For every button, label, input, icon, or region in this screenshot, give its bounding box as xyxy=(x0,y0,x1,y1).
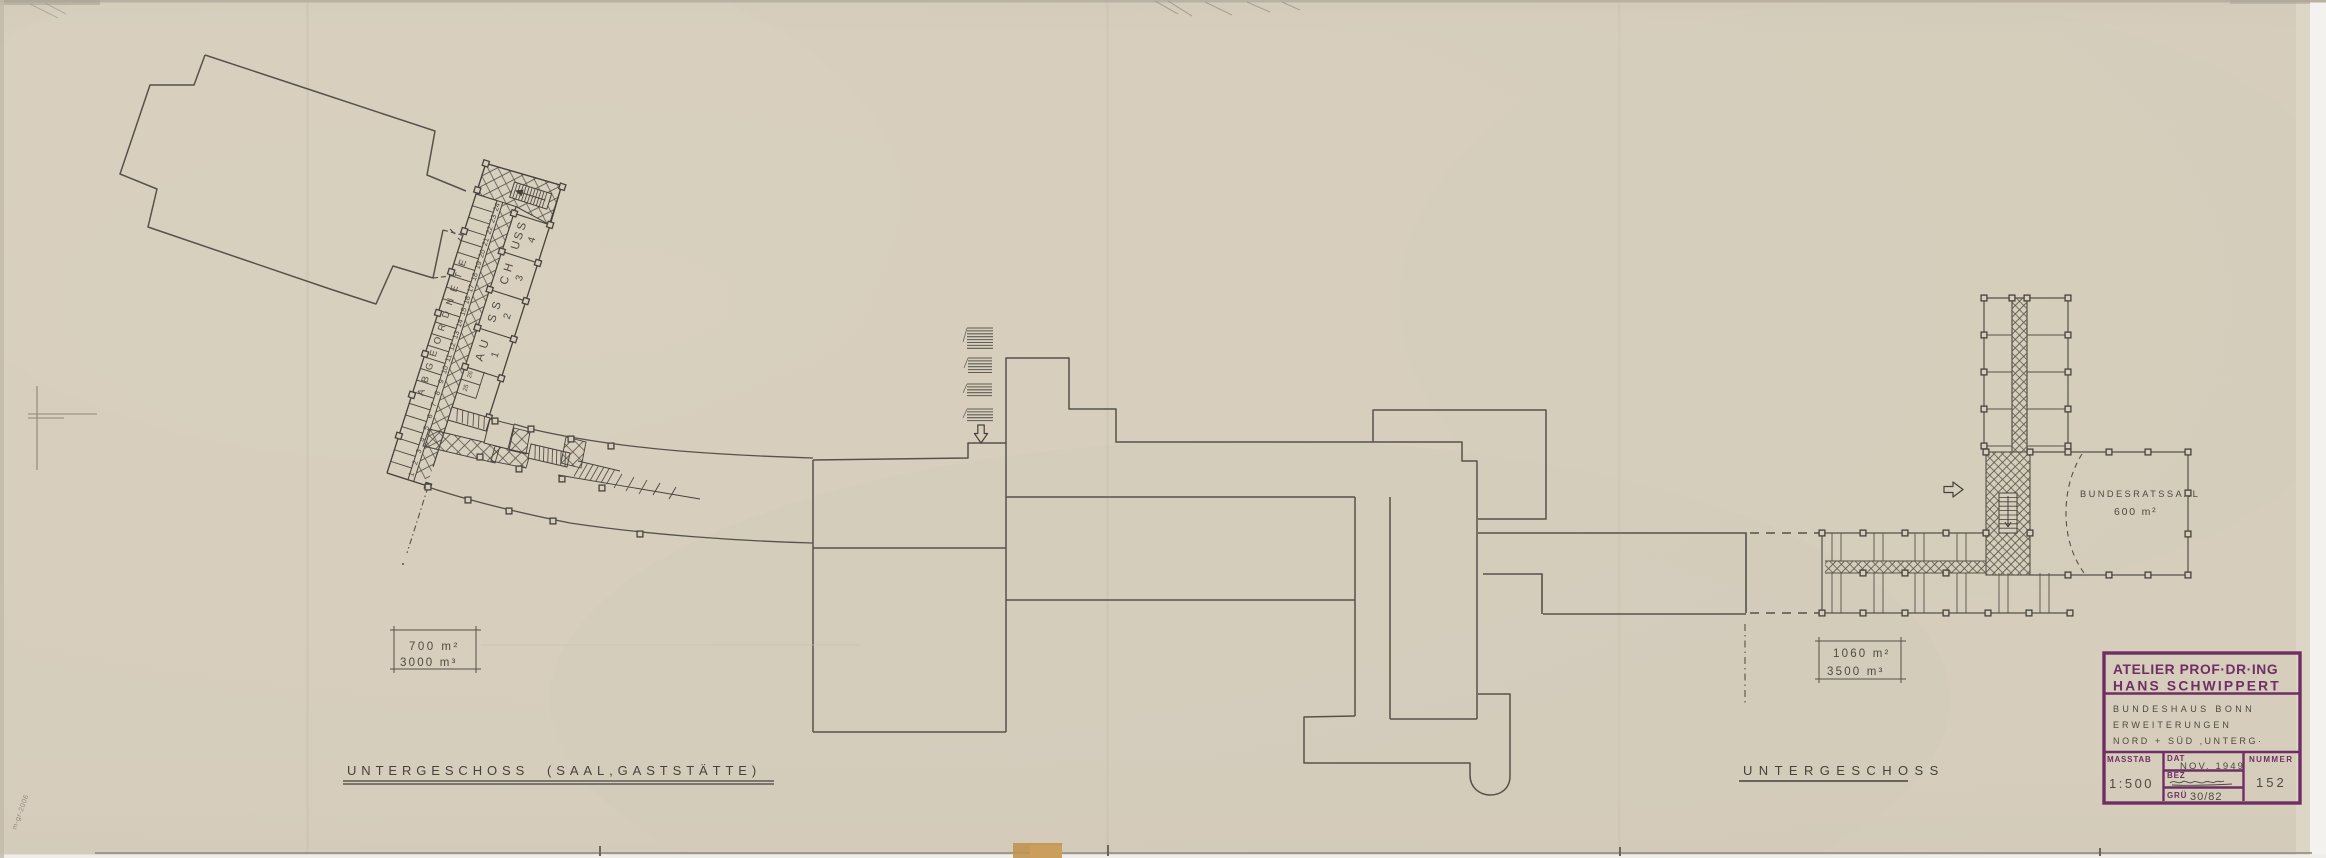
svg-text:UNTERGESCHOSS: UNTERGESCHOSS xyxy=(1743,763,1945,778)
svg-text:700 m²: 700 m² xyxy=(409,641,460,653)
svg-text:BUNDESRATSSAAL: BUNDESRATSSAAL xyxy=(2080,489,2200,499)
svg-text:30/82: 30/82 xyxy=(2190,791,2223,803)
svg-text:UNTERGESCHOSS (SAAL,GASTSTÄTTE: UNTERGESCHOSS (SAAL,GASTSTÄTTE) xyxy=(347,763,761,778)
svg-text:BEZ: BEZ xyxy=(2167,771,2185,780)
svg-text:3000 m³: 3000 m³ xyxy=(400,657,458,669)
svg-text:1:500: 1:500 xyxy=(2109,776,2154,791)
svg-text:BUNDESHAUS BONN: BUNDESHAUS BONN xyxy=(2113,704,2255,714)
svg-text:ERWEITERUNGEN: ERWEITERUNGEN xyxy=(2113,720,2232,730)
svg-text:GRÜ: GRÜ xyxy=(2167,791,2187,800)
svg-text:NUMMER: NUMMER xyxy=(2249,755,2293,764)
svg-text:152: 152 xyxy=(2256,775,2287,790)
svg-text:MASSTAB: MASSTAB xyxy=(2107,755,2152,764)
svg-text:3500 m³: 3500 m³ xyxy=(1827,666,1885,678)
svg-text:HANS SCHWIPPERT: HANS SCHWIPPERT xyxy=(2113,679,2281,694)
svg-text:600 m²: 600 m² xyxy=(2114,506,2157,518)
svg-text:NOV. 1949: NOV. 1949 xyxy=(2180,761,2245,772)
svg-text:ATELIER PROF·DR·ING: ATELIER PROF·DR·ING xyxy=(2113,662,2278,677)
svg-text:1060 m²: 1060 m² xyxy=(1833,648,1891,660)
svg-text:NORD + SÜD ‚UNTERG·: NORD + SÜD ‚UNTERG· xyxy=(2113,736,2264,746)
